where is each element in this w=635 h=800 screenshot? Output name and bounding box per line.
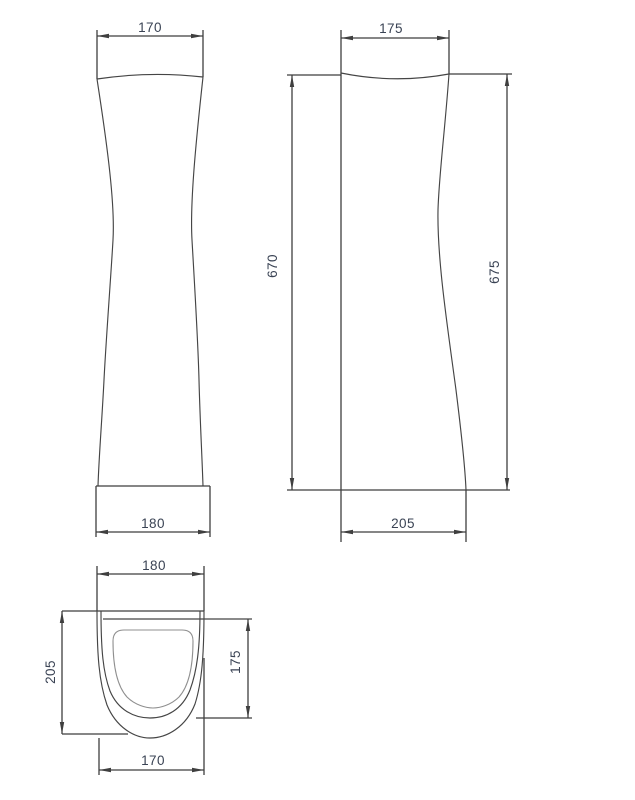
dimension-label: 180 bbox=[141, 516, 165, 531]
dimension-label: 170 bbox=[141, 753, 165, 768]
side-outline-back-profile bbox=[438, 74, 466, 490]
dimension-label: 175 bbox=[379, 21, 403, 36]
arrowhead bbox=[505, 74, 509, 86]
front-outline-top-edge bbox=[97, 74, 203, 79]
arrowhead bbox=[341, 530, 353, 534]
arrowhead bbox=[192, 572, 204, 576]
arrowhead bbox=[60, 611, 64, 623]
technical-drawing-page: 170 180 175 670 bbox=[0, 0, 635, 800]
dimension-label: 175 bbox=[228, 650, 243, 674]
arrowhead bbox=[290, 478, 294, 490]
front-outline-left bbox=[97, 79, 113, 486]
arrowhead bbox=[192, 768, 204, 772]
arrowhead bbox=[246, 706, 250, 718]
plan-view: 180 205 175 170 bbox=[43, 558, 252, 775]
arrowhead bbox=[99, 768, 111, 772]
arrowhead bbox=[246, 619, 250, 631]
arrowhead bbox=[60, 722, 64, 734]
plan-recess-contour bbox=[113, 630, 193, 708]
pedestal-three-view-drawing: 170 180 175 670 bbox=[0, 0, 635, 800]
dimension-label: 180 bbox=[142, 558, 166, 573]
arrowhead bbox=[454, 530, 466, 534]
arrowhead bbox=[437, 36, 449, 40]
arrowhead bbox=[97, 34, 109, 38]
plan-inner-wall-contour bbox=[101, 611, 200, 718]
arrowhead bbox=[97, 572, 109, 576]
dimension-label: 205 bbox=[391, 516, 415, 531]
dimension-label: 670 bbox=[265, 254, 280, 278]
arrowhead bbox=[505, 478, 509, 490]
dimension-label: 170 bbox=[138, 20, 162, 35]
front-outline-right bbox=[192, 77, 203, 486]
arrowhead bbox=[341, 36, 353, 40]
arrowhead bbox=[96, 530, 108, 534]
arrowhead bbox=[198, 530, 210, 534]
dimension-label: 205 bbox=[43, 660, 58, 684]
side-view: 175 670 675 205 bbox=[265, 21, 512, 542]
dimension-label: 675 bbox=[487, 260, 502, 284]
arrowhead bbox=[191, 34, 203, 38]
front-view: 170 180 bbox=[96, 20, 210, 537]
side-outline-top-edge bbox=[341, 73, 449, 79]
arrowhead bbox=[290, 75, 294, 87]
